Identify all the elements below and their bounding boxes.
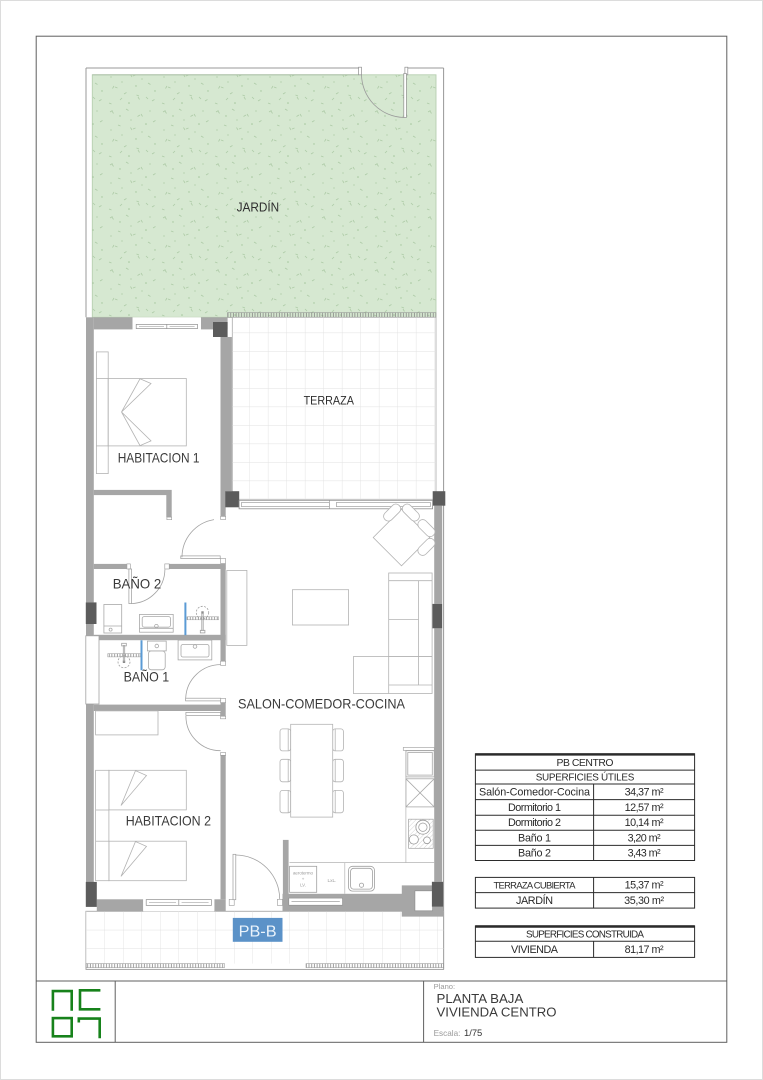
svg-text:15,37 m²: 15,37 m²	[625, 880, 664, 892]
svg-text:BAÑO 2: BAÑO 2	[113, 576, 162, 592]
svg-text:aerotermo: aerotermo	[293, 871, 314, 876]
svg-text:3,20 m²: 3,20 m²	[628, 832, 661, 844]
svg-text:PB CENTRO: PB CENTRO	[557, 758, 614, 769]
svg-text:VIVIENDA: VIVIENDA	[511, 944, 559, 956]
svg-text:Plano:: Plano:	[434, 982, 456, 991]
svg-text:3,43 m²: 3,43 m²	[628, 847, 661, 859]
svg-text:Baño 1: Baño 1	[518, 832, 551, 844]
svg-text:Baño 2: Baño 2	[518, 847, 551, 859]
svg-text:34,37 m²: 34,37 m²	[625, 787, 664, 799]
svg-text:LxL.: LxL.	[327, 878, 336, 884]
svg-text:10,14 m²: 10,14 m²	[625, 817, 664, 829]
svg-text:JARDÍN: JARDÍN	[516, 894, 553, 907]
svg-text:TERRAZA CUBIERTA: TERRAZA CUBIERTA	[494, 880, 577, 891]
svg-text:SUPERFICIES CONSTRUIDA: SUPERFICIES CONSTRUIDA	[526, 929, 644, 940]
svg-text:HABITACION 1: HABITACION 1	[118, 450, 200, 465]
svg-text:LV.: LV.	[300, 883, 306, 888]
svg-text:1/75: 1/75	[464, 1027, 482, 1038]
svg-text:Escala:: Escala:	[434, 1029, 461, 1038]
svg-text:Salón-Comedor-Cocina: Salón-Comedor-Cocina	[479, 787, 590, 799]
svg-text:TERRAZA: TERRAZA	[304, 394, 355, 408]
svg-text:HABITACION 2: HABITACION 2	[126, 814, 211, 829]
svg-text:Dormitorio 1: Dormitorio 1	[508, 802, 561, 814]
svg-text:12,57 m²: 12,57 m²	[625, 802, 664, 814]
svg-text:35,30 m²: 35,30 m²	[624, 895, 664, 907]
svg-text:81,17 m²: 81,17 m²	[625, 944, 664, 956]
svg-text:PB-B: PB-B	[239, 924, 277, 941]
svg-text:VIVIENDA CENTRO: VIVIENDA CENTRO	[437, 1004, 557, 1019]
svg-text:+: +	[302, 877, 305, 882]
svg-text:SUPERFICIES ÚTILES: SUPERFICIES ÚTILES	[536, 772, 635, 783]
svg-text:SALON-COMEDOR-COCINA: SALON-COMEDOR-COCINA	[238, 697, 406, 712]
svg-text:Dormitorio 2: Dormitorio 2	[508, 817, 561, 829]
svg-text:JARDÍN: JARDÍN	[237, 199, 280, 214]
svg-text:BAÑO 1: BAÑO 1	[124, 669, 170, 685]
